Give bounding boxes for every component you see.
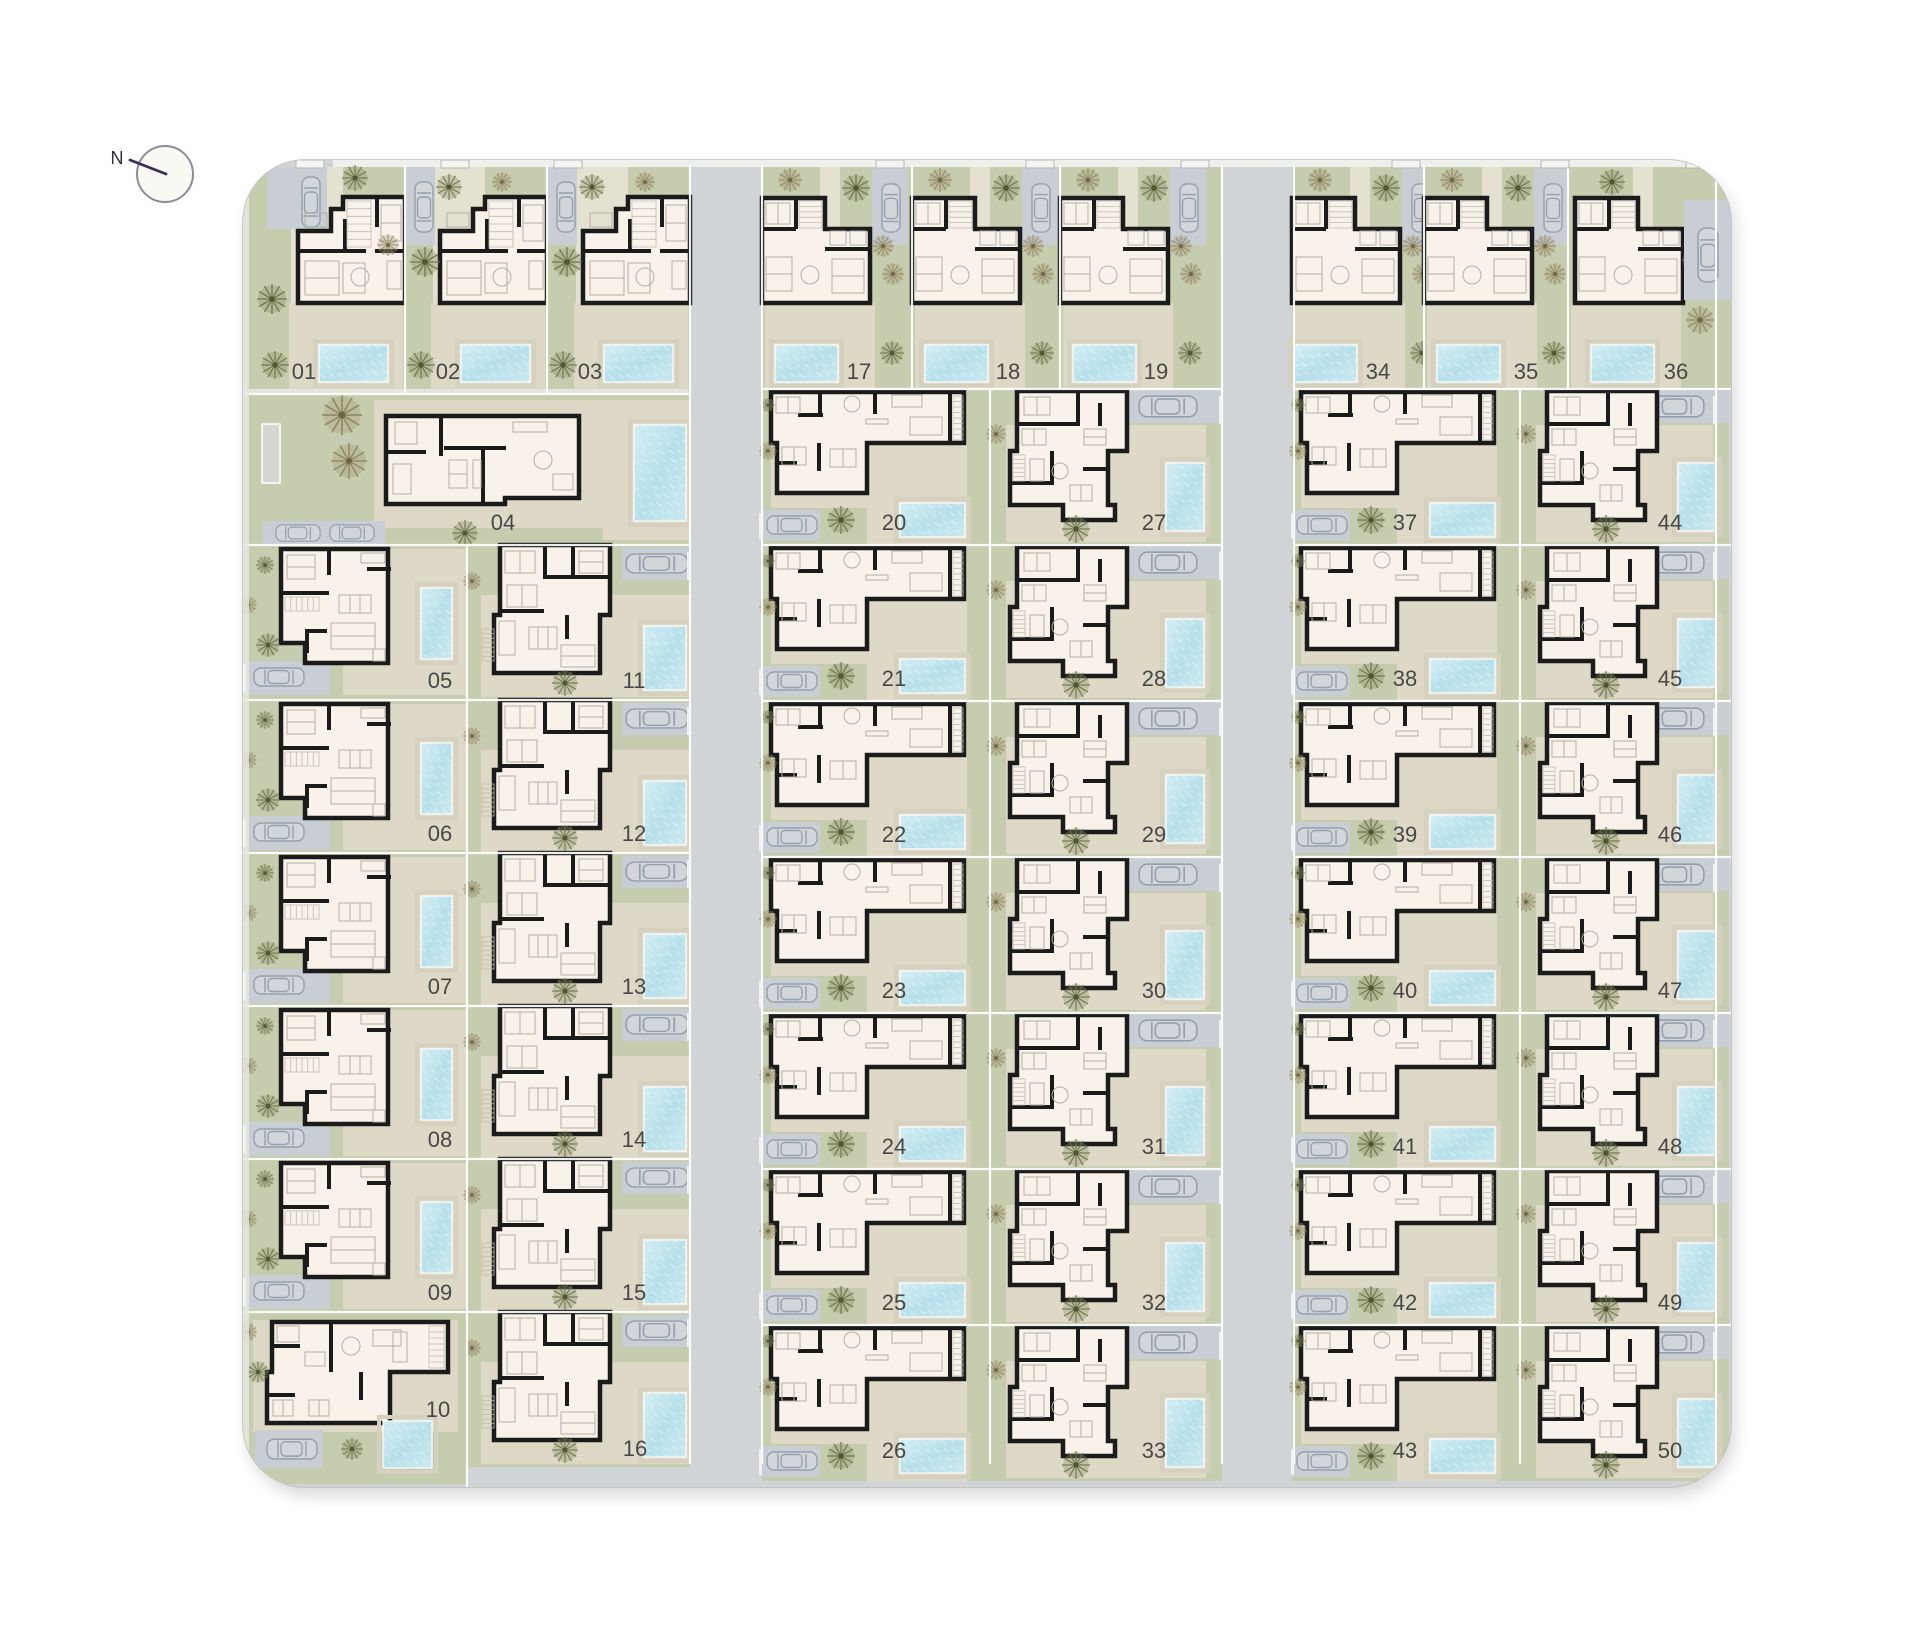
svg-text:02: 02 [436,359,460,384]
svg-text:24: 24 [882,1134,906,1159]
svg-text:43: 43 [1393,1438,1417,1463]
svg-text:47: 47 [1658,978,1682,1003]
svg-text:18: 18 [996,359,1020,384]
svg-text:17: 17 [847,359,871,384]
svg-text:34: 34 [1366,359,1390,384]
svg-text:36: 36 [1664,359,1688,384]
svg-text:08: 08 [428,1127,452,1152]
svg-text:03: 03 [578,359,602,384]
svg-text:42: 42 [1393,1290,1417,1315]
svg-text:38: 38 [1393,666,1417,691]
svg-text:N: N [111,148,124,168]
svg-text:14: 14 [622,1127,646,1152]
svg-text:05: 05 [428,668,452,693]
svg-text:16: 16 [623,1436,647,1461]
svg-text:10: 10 [426,1397,450,1422]
svg-text:41: 41 [1393,1134,1417,1159]
svg-text:11: 11 [623,668,646,693]
svg-text:37: 37 [1393,510,1417,535]
svg-text:27: 27 [1142,510,1166,535]
svg-text:45: 45 [1658,666,1682,691]
svg-text:33: 33 [1142,1438,1166,1463]
svg-text:09: 09 [428,1280,452,1305]
svg-text:26: 26 [882,1438,906,1463]
svg-text:21: 21 [882,666,906,691]
svg-text:32: 32 [1142,1290,1166,1315]
svg-text:25: 25 [882,1290,906,1315]
svg-text:39: 39 [1393,822,1417,847]
svg-text:40: 40 [1393,978,1417,1003]
svg-text:13: 13 [622,974,646,999]
svg-text:01: 01 [292,359,316,384]
svg-text:19: 19 [1144,359,1168,384]
svg-text:29: 29 [1142,822,1166,847]
svg-text:06: 06 [428,821,452,846]
svg-text:28: 28 [1142,666,1166,691]
svg-text:48: 48 [1658,1134,1682,1159]
svg-text:15: 15 [622,1280,646,1305]
svg-text:04: 04 [491,510,515,535]
svg-text:49: 49 [1658,1290,1682,1315]
svg-text:30: 30 [1142,978,1166,1003]
svg-text:07: 07 [428,974,452,999]
svg-text:35: 35 [1514,359,1538,384]
svg-text:12: 12 [622,821,646,846]
svg-text:22: 22 [882,822,906,847]
svg-text:20: 20 [882,510,906,535]
svg-text:44: 44 [1658,510,1682,535]
svg-text:50: 50 [1658,1438,1682,1463]
svg-text:31: 31 [1142,1134,1166,1159]
svg-text:23: 23 [882,978,906,1003]
svg-text:46: 46 [1658,822,1682,847]
